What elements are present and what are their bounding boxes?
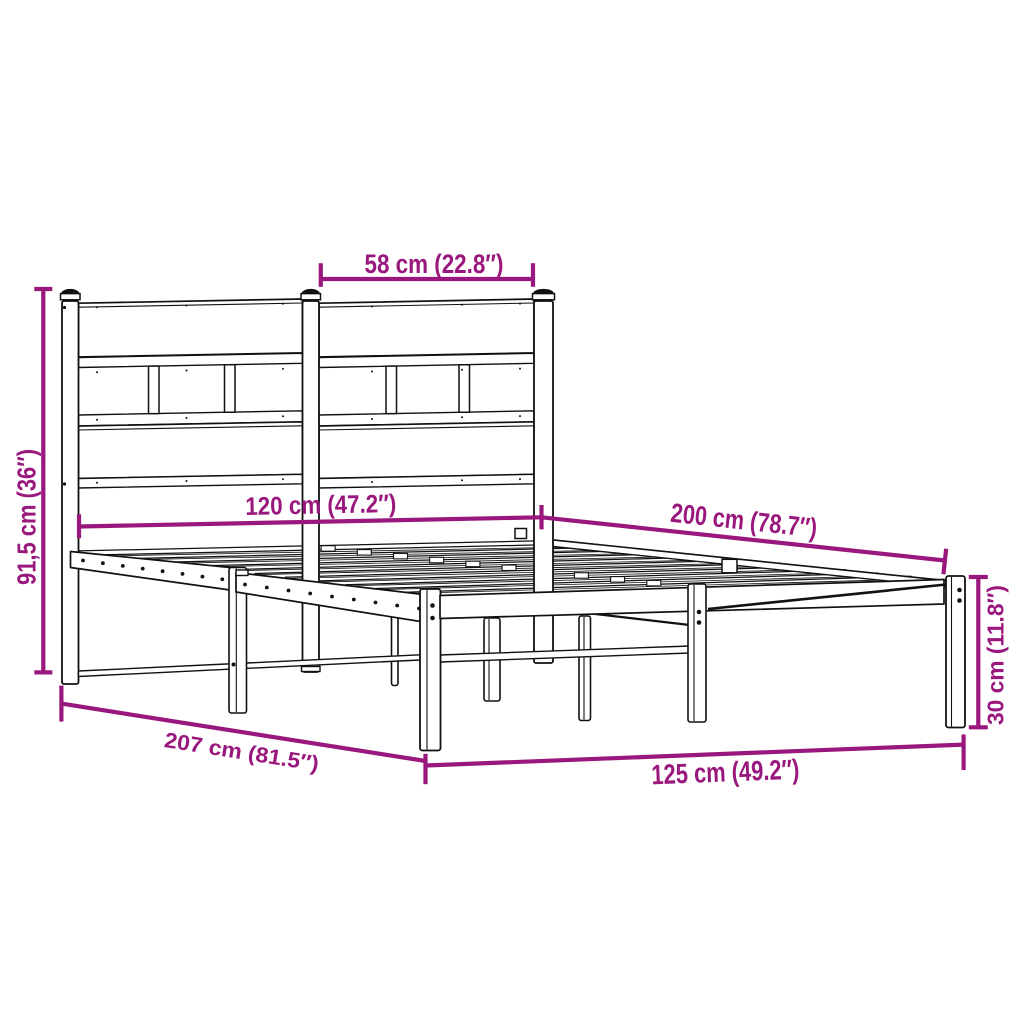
svg-text:120 cm (47.2″): 120 cm (47.2″) [245, 490, 397, 521]
svg-text:91,5 cm (36″): 91,5 cm (36″) [12, 449, 42, 585]
svg-text:58 cm (22.8″): 58 cm (22.8″) [365, 249, 504, 279]
svg-text:125 cm (49.2″): 125 cm (49.2″) [651, 754, 800, 791]
svg-text:30 cm (11.8″): 30 cm (11.8″) [983, 585, 1009, 725]
